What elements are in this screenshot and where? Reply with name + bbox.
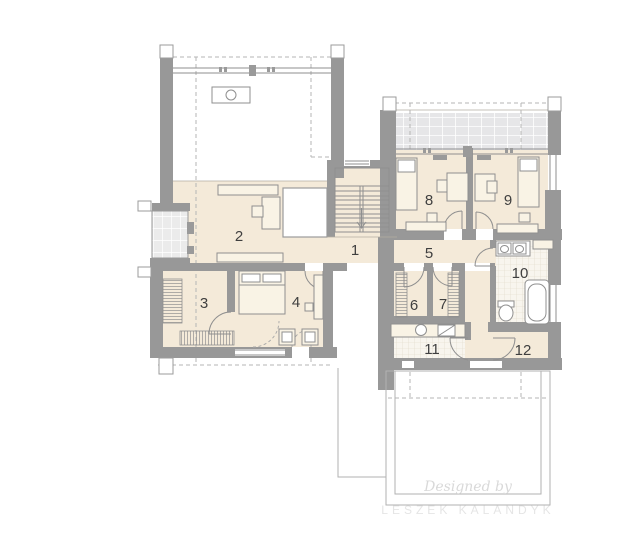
room-label-12: 12 <box>515 342 532 359</box>
terrace-tiles <box>396 113 548 150</box>
closet-7-rail <box>448 273 459 317</box>
room-label-4: 4 <box>292 294 300 311</box>
room-label-2: 2 <box>235 228 243 245</box>
glass-block-panel <box>152 211 188 258</box>
closet-6-rail <box>396 273 407 317</box>
room-label-11: 11 <box>424 341 440 358</box>
radiator <box>187 222 194 234</box>
void-lamp <box>212 87 250 103</box>
floor-plan-image: 1 2 3 4 5 6 7 8 9 10 11 12 Designed by L… <box>0 0 638 556</box>
watermark-line1: Designed by <box>423 479 513 495</box>
radiator <box>187 246 194 254</box>
void-top-window <box>173 65 331 76</box>
floor-plan-drawing: 1 2 3 4 5 6 7 8 9 10 11 12 Designed by L… <box>0 0 638 556</box>
room-label-8: 8 <box>425 192 433 209</box>
room-label-3: 3 <box>200 295 208 312</box>
laundry-sink <box>416 325 427 336</box>
room-label-1: 1 <box>351 242 359 259</box>
room-4-bed <box>239 271 285 314</box>
watermark: Designed by LESZEK KALANDYK <box>381 479 554 517</box>
watermark-line2: LESZEK KALANDYK <box>381 503 554 517</box>
toilet <box>498 301 514 321</box>
room-label-7: 7 <box>439 296 447 313</box>
room-label-10: 10 <box>512 265 529 282</box>
recess-gap <box>333 263 378 375</box>
bathtub <box>525 280 549 324</box>
laundry-11-fixtures <box>391 324 465 337</box>
room-label-9: 9 <box>504 192 512 209</box>
room-label-5: 5 <box>425 245 433 262</box>
room-label-6: 6 <box>410 297 418 314</box>
open-to-below-void <box>283 188 327 237</box>
